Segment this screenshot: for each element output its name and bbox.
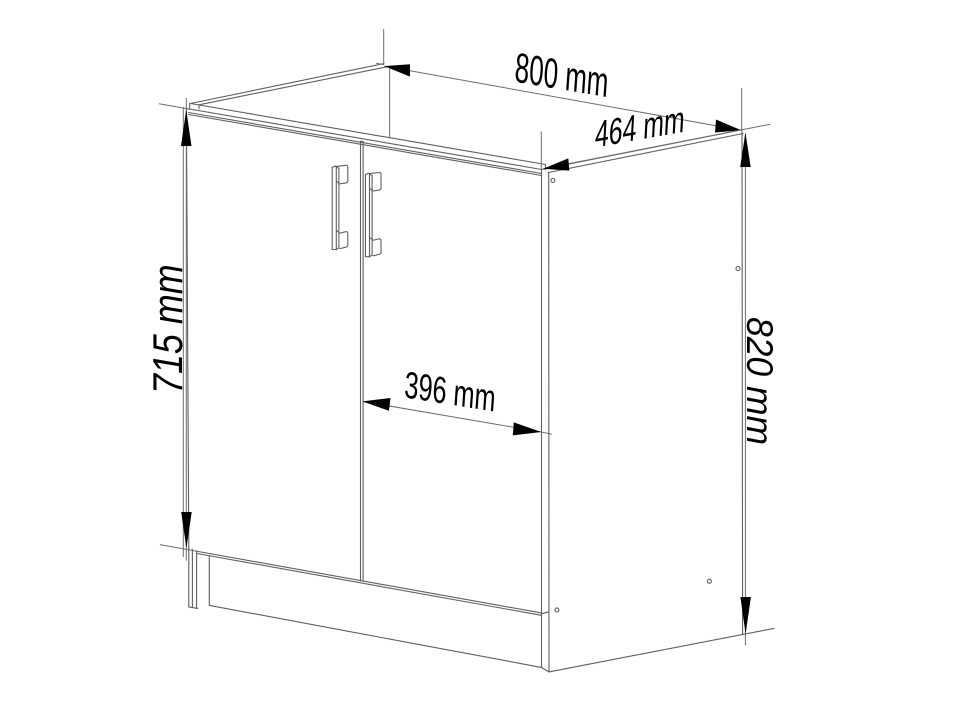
svg-text:800 mm: 800 mm [513,44,610,106]
svg-text:715 mm: 715 mm [145,264,191,394]
svg-text:396 mm: 396 mm [403,363,497,419]
svg-text:820 mm: 820 mm [739,317,781,445]
